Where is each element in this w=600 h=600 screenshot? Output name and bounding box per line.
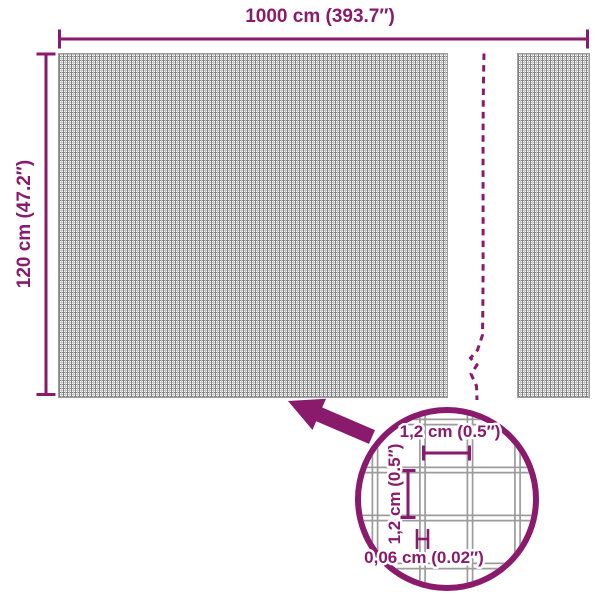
height-dimension-line xyxy=(37,54,56,395)
zoom-arrow-icon xyxy=(288,399,375,444)
width-dimension-line xyxy=(60,30,588,49)
height-dimension-label: 120 cm (47.2″) xyxy=(14,160,35,288)
product-dimension-diagram: 1000 cm (393.7″) 120 cm (47.2″) xyxy=(0,0,600,600)
wire-thickness-label: 0,06 cm (0.02″) xyxy=(364,548,484,567)
cell-height-label: 1,2 cm (0.5″) xyxy=(385,444,404,545)
width-dimension-label: 1000 cm (393.7″) xyxy=(245,6,395,27)
tear-dashed-line xyxy=(471,54,485,401)
diagram-overlay: 1000 cm (393.7″) 120 cm (47.2″) xyxy=(0,0,600,600)
cell-width-label: 1,2 cm (0.5″) xyxy=(400,422,501,441)
